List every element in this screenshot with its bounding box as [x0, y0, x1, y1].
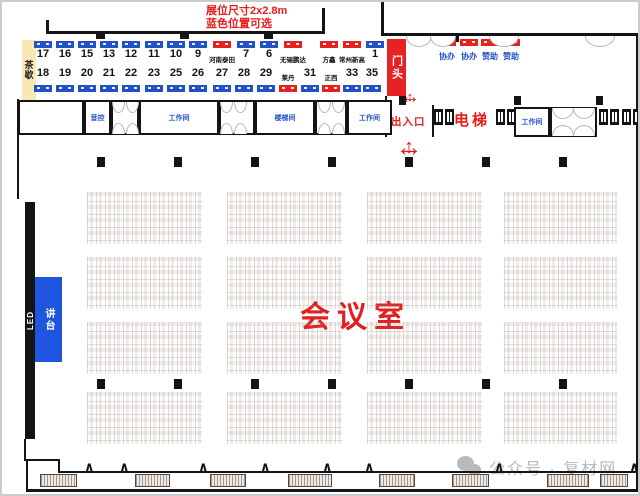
booth-marker: [100, 41, 118, 48]
window-hatch: [210, 474, 246, 487]
wall: [96, 32, 105, 39]
window-hatch: [452, 474, 489, 487]
window-hatch: [288, 474, 332, 487]
seating-block: [87, 392, 202, 444]
booth-marker: [56, 85, 74, 92]
pillar: [328, 379, 336, 389]
booth-marker: [366, 41, 384, 48]
booth-marker: [322, 85, 340, 92]
door-chevron-icon: ∧: [629, 460, 640, 473]
booth-marker: [100, 85, 118, 92]
wall: [381, 2, 384, 36]
booth-marker: [78, 85, 96, 92]
seating-block: [504, 322, 617, 374]
led-label: LED: [26, 311, 35, 330]
elevator-icon: [496, 109, 505, 125]
wall: [322, 8, 325, 34]
workroom-3-room: 工作间: [514, 107, 550, 137]
pillar: [251, 157, 259, 167]
seating-block: [367, 392, 482, 444]
booth-marker: [34, 41, 52, 48]
seating-block: [504, 257, 617, 309]
booth-marker: [167, 41, 185, 48]
booth-marker: [284, 41, 302, 48]
booth-marker: [56, 41, 74, 48]
stairwell-room: 楼梯间: [255, 100, 315, 135]
room-label: 楼梯间: [275, 113, 296, 123]
room-label: 工作间: [169, 113, 190, 123]
door-chevron-icon: ∧: [84, 460, 95, 473]
pillar: [405, 379, 413, 389]
booth-label: 35: [352, 67, 392, 79]
booth-marker: [122, 41, 140, 48]
booth-size-line2: 蓝色位置可选: [206, 18, 287, 31]
podium-label: 讲台: [41, 308, 56, 332]
pillar: [482, 379, 490, 389]
elevator-icon: [622, 109, 631, 125]
elevator-icon: [445, 109, 454, 125]
booth-size-line1: 展位尺寸2x2.8m: [206, 5, 287, 18]
window-hatch: [379, 474, 415, 487]
seating-block: [87, 322, 202, 374]
door-arc-icon: [585, 36, 615, 47]
door-chevron-icon: ∧: [198, 460, 209, 473]
wall: [26, 461, 28, 491]
booth-marker: [189, 85, 207, 92]
room-label: 工作间: [359, 113, 380, 123]
booth-marker: [122, 85, 140, 92]
booth-marker: [279, 85, 297, 92]
booth-marker: [343, 85, 361, 92]
wall: [46, 20, 49, 34]
entrance-exit-label: 出入口: [391, 114, 426, 129]
seating-block: [87, 257, 202, 309]
booth-marker: [260, 41, 278, 48]
booth-marker: [343, 41, 361, 48]
led-screen: LED: [25, 202, 35, 439]
room: [18, 100, 84, 135]
elevator-icon: [507, 109, 516, 125]
pillar: [559, 379, 567, 389]
pillar: [174, 157, 182, 167]
booth-size-note: 展位尺寸2x2.8m 蓝色位置可选: [206, 5, 287, 31]
pillar: [405, 157, 413, 167]
sponsor-label: 赞助: [496, 51, 526, 62]
booth-marker: [145, 85, 163, 92]
seating-block: [87, 192, 202, 244]
pillar: [596, 96, 603, 105]
booth-marker: [237, 41, 255, 48]
elevator-icon: [599, 109, 608, 125]
pillar: [328, 157, 336, 167]
pillar: [399, 96, 406, 105]
seating-block: [367, 192, 482, 244]
wall: [24, 459, 60, 461]
booth-label: 1: [355, 48, 395, 60]
elevator-icon: [610, 109, 619, 125]
window-hatch: [547, 474, 589, 487]
pillar: [514, 96, 521, 105]
wall: [26, 489, 639, 492]
window-hatch: [600, 474, 628, 487]
seating-block: [367, 322, 482, 374]
window-hatch: [135, 474, 170, 487]
pillar: [174, 379, 182, 389]
podium: 讲台: [35, 277, 62, 362]
pillar: [97, 379, 105, 389]
booth-marker: [301, 85, 319, 92]
booth-marker: [145, 41, 163, 48]
pillar: [559, 157, 567, 167]
booth-marker: [235, 85, 253, 92]
wall: [24, 439, 26, 461]
sound-control-room: 音控: [84, 100, 111, 135]
room-label: 工作间: [522, 117, 543, 127]
pillar: [97, 157, 105, 167]
booth-marker: [363, 85, 381, 92]
elevator-icon: [434, 109, 443, 125]
door-chevron-icon: ∧: [494, 460, 505, 473]
seating-block: [227, 192, 342, 244]
booth-marker: [167, 85, 185, 92]
door-chevron-icon: ∧: [364, 460, 375, 473]
pillar: [482, 157, 490, 167]
door-chevron-icon: ∧: [119, 460, 130, 473]
wall: [58, 471, 638, 473]
seating-block: [504, 392, 617, 444]
seating-block: [227, 392, 342, 444]
booth-marker: [78, 41, 96, 48]
booth-marker: [320, 41, 338, 48]
elevator-label: 电梯: [454, 109, 490, 130]
door-arc-icon: [406, 36, 432, 47]
seating-block: [227, 322, 342, 374]
exhibition-floor-plan: 展位尺寸2x2.8m 蓝色位置可选 茶歇 门头 出入口 电梯 ↔ ↕ ↔ ↕ 会…: [0, 0, 640, 496]
booth-marker: [213, 41, 231, 48]
pillar: [251, 379, 259, 389]
seating-block: [367, 257, 482, 309]
door-chevron-icon: ∧: [322, 460, 333, 473]
room-label: 音控: [91, 113, 105, 123]
wall: [180, 32, 189, 39]
workroom-1-room: 工作间: [139, 100, 219, 135]
booth-marker: [34, 85, 52, 92]
seating-block: [227, 257, 342, 309]
door-chevron-icon: ∧: [260, 460, 271, 473]
booth-marker: [213, 85, 231, 92]
elevator-icon: [633, 109, 640, 125]
booth-marker: [257, 85, 275, 92]
workroom-2-room: 工作间: [347, 100, 392, 135]
seating-block: [504, 192, 617, 244]
booth-marker: [189, 41, 207, 48]
window-hatch: [40, 474, 77, 487]
wall: [264, 32, 273, 39]
wall: [636, 33, 639, 491]
sponsor-marker: [460, 39, 478, 46]
